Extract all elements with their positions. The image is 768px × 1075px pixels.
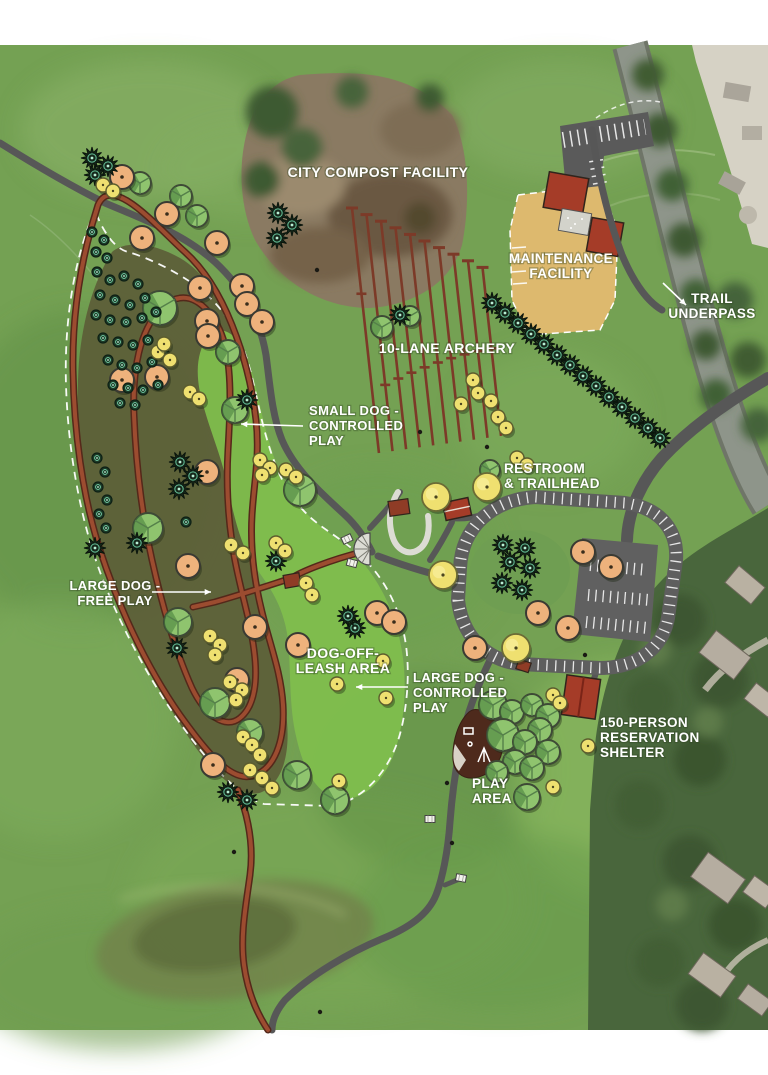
shrub-icon bbox=[151, 307, 161, 317]
site-dot bbox=[315, 268, 319, 272]
shrub-icon bbox=[101, 523, 111, 533]
label-maintenance-line: FACILITY bbox=[529, 266, 592, 281]
label-play-area-line: PLAY bbox=[472, 776, 508, 791]
label-shelter-line: 150-PERSON bbox=[600, 715, 688, 730]
label-large-dog-controlled-line: PLAY bbox=[413, 700, 448, 715]
maintenance-building bbox=[543, 172, 589, 214]
shrub-icon bbox=[137, 313, 147, 323]
shrub-icon bbox=[102, 495, 112, 505]
label-archery: 10-LANE ARCHERY bbox=[379, 340, 516, 356]
shrub-icon bbox=[133, 279, 143, 289]
gravel-pad bbox=[558, 209, 591, 236]
shrub-icon bbox=[143, 335, 153, 345]
label-trail-underpass-line: UNDERPASS bbox=[668, 306, 755, 321]
shrub-icon bbox=[91, 310, 101, 320]
shrub-icon bbox=[119, 271, 129, 281]
label-restroom-line: & TRAILHEAD bbox=[504, 476, 600, 491]
shrub-icon bbox=[100, 467, 110, 477]
label-large-dog-free-line: FREE PLAY bbox=[77, 593, 152, 608]
label-shelter-line: RESERVATION bbox=[600, 730, 700, 745]
shrub-icon bbox=[105, 275, 115, 285]
bench-icon bbox=[455, 874, 466, 883]
label-small-dog-line: PLAY bbox=[309, 433, 344, 448]
label-compost-line: CITY COMPOST FACILITY bbox=[288, 164, 469, 180]
site-dot bbox=[583, 653, 587, 657]
shrub-icon bbox=[105, 315, 115, 325]
shrub-icon bbox=[98, 333, 108, 343]
label-dog-off-leash-line: DOG-OFF- bbox=[307, 645, 379, 661]
shrub-icon bbox=[125, 300, 135, 310]
shrub-icon bbox=[115, 398, 125, 408]
shrub-icon bbox=[123, 383, 133, 393]
reservation-shelter-building bbox=[561, 675, 600, 719]
shrub-icon bbox=[132, 363, 142, 373]
label-shelter-line: SHELTER bbox=[600, 745, 665, 760]
label-compost: CITY COMPOST FACILITY bbox=[288, 164, 469, 180]
shrub-icon bbox=[92, 453, 102, 463]
label-small-dog-line: SMALL DOG - bbox=[309, 403, 399, 418]
label-archery-line: 10-LANE ARCHERY bbox=[379, 340, 516, 356]
label-dog-off-leash: DOG-OFF-LEASH AREA bbox=[296, 645, 391, 676]
shrub-icon bbox=[94, 509, 104, 519]
shrub-icon bbox=[113, 337, 123, 347]
site-dot bbox=[318, 1010, 322, 1014]
shrub-icon bbox=[140, 293, 150, 303]
shrub-icon bbox=[110, 295, 120, 305]
shrub-icon bbox=[92, 267, 102, 277]
shrub-icon bbox=[138, 385, 148, 395]
label-maintenance-line: MAINTENANCE bbox=[509, 251, 613, 266]
label-restroom-line: RESTROOM bbox=[504, 461, 585, 476]
label-dog-off-leash-line: LEASH AREA bbox=[296, 660, 391, 676]
label-large-dog-free-line: LARGE DOG - bbox=[69, 578, 160, 593]
shrub-icon bbox=[99, 235, 109, 245]
shade-shelter bbox=[283, 573, 301, 589]
label-large-dog-controlled-line: CONTROLLED bbox=[413, 685, 507, 700]
shrub-icon bbox=[128, 340, 138, 350]
archery-shed bbox=[388, 499, 410, 517]
shrub-icon bbox=[108, 380, 118, 390]
label-small-dog-line: CONTROLLED bbox=[309, 418, 403, 433]
shrub-icon bbox=[87, 227, 97, 237]
shrub-icon bbox=[121, 317, 131, 327]
site-dot bbox=[450, 841, 454, 845]
site-dot bbox=[418, 430, 422, 434]
shrub-icon bbox=[91, 247, 101, 257]
label-trail-underpass-line: TRAIL bbox=[691, 291, 733, 306]
label-play-area: PLAYAREA bbox=[472, 776, 512, 806]
site-dot bbox=[485, 445, 489, 449]
shrub-icon bbox=[95, 290, 105, 300]
shrub-icon bbox=[181, 517, 191, 527]
shrub-icon bbox=[93, 482, 103, 492]
label-large-dog-free: LARGE DOG -FREE PLAY bbox=[69, 578, 160, 608]
site-dot bbox=[445, 781, 449, 785]
shrub-icon bbox=[102, 253, 112, 263]
map-svg: CITY COMPOST FACILITYMAINTENANCEFACILITY… bbox=[0, 0, 768, 1075]
shrub-icon bbox=[103, 355, 113, 365]
site-plan-map: CITY COMPOST FACILITYMAINTENANCEFACILITY… bbox=[0, 0, 768, 1075]
label-play-area-line: AREA bbox=[472, 791, 512, 806]
label-large-dog-controlled-line: LARGE DOG - bbox=[413, 670, 504, 685]
bench-icon bbox=[425, 816, 435, 823]
shrub-icon bbox=[117, 360, 127, 370]
site-dot bbox=[232, 850, 236, 854]
shrub-icon bbox=[130, 400, 140, 410]
shrub-icon bbox=[153, 380, 163, 390]
